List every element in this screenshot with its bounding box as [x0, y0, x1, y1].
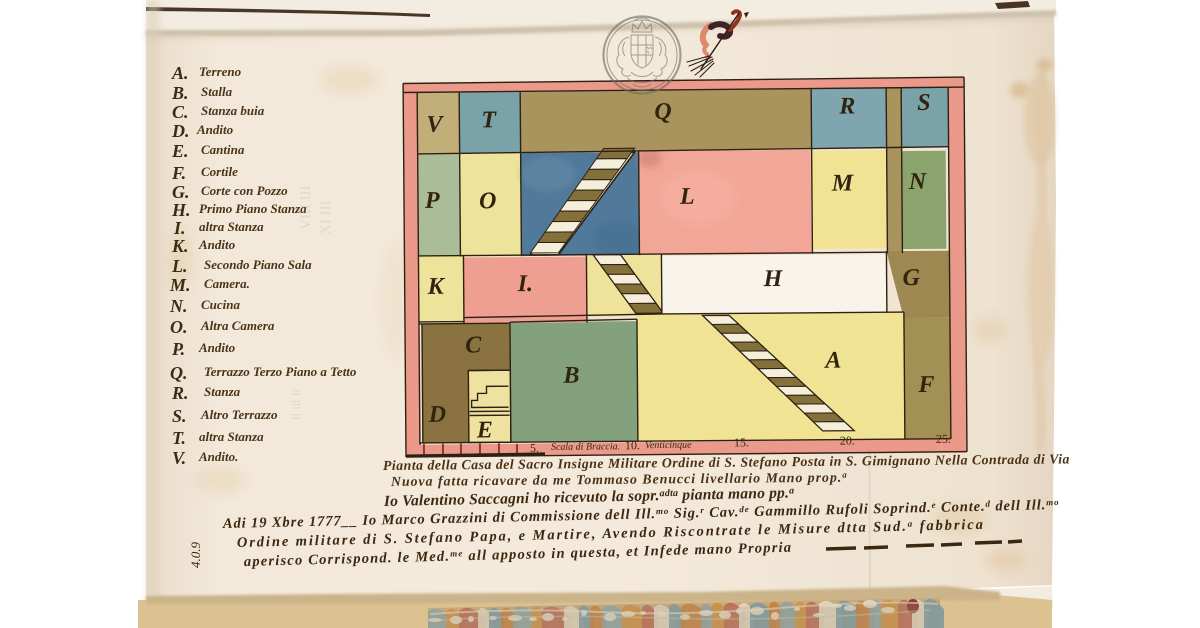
svg-text:O.: O. — [170, 317, 188, 337]
svg-text:Camera.: Camera. — [204, 276, 250, 291]
svg-text:altra Stanza: altra Stanza — [199, 219, 264, 234]
svg-text:Altra Camera: Altra Camera — [200, 318, 275, 333]
svg-text:P: P — [424, 188, 440, 214]
svg-text:S: S — [917, 90, 931, 116]
svg-text:Cucina: Cucina — [201, 297, 241, 312]
svg-text:altra Stanza: altra Stanza — [199, 429, 264, 444]
svg-text:Andito: Andito — [198, 237, 236, 252]
svg-text:Terreno: Terreno — [199, 64, 242, 79]
svg-text:B.: B. — [171, 83, 189, 103]
svg-text:M.: M. — [169, 275, 191, 295]
svg-text:F.: F. — [171, 163, 186, 183]
svg-text:Terrazzo Terzo Piano a Tetto: Terrazzo Terzo Piano a Tetto — [204, 364, 357, 379]
svg-text:Altro Terrazzo: Altro Terrazzo — [200, 407, 278, 422]
svg-text:T.: T. — [172, 428, 186, 448]
svg-text:Primo Piano Stanza: Primo Piano Stanza — [199, 201, 307, 216]
svg-text:R: R — [838, 93, 855, 119]
svg-text:M: M — [831, 170, 855, 196]
svg-text:Corte con Pozzo: Corte con Pozzo — [201, 183, 288, 198]
svg-text:Cantina: Cantina — [201, 142, 245, 157]
svg-text:Secondo Piano Sala: Secondo Piano Sala — [204, 257, 312, 272]
svg-text:I.: I. — [517, 271, 534, 297]
svg-text:S.: S. — [172, 406, 187, 426]
svg-text:20.: 20. — [840, 433, 855, 447]
svg-text:P.: P. — [171, 339, 185, 359]
svg-text:15.: 15. — [734, 435, 749, 449]
svg-text:ll ul li: ll ul li — [288, 389, 303, 420]
svg-text:I.: I. — [173, 218, 186, 238]
svg-text:H: H — [763, 266, 784, 292]
svg-text:Q: Q — [654, 99, 672, 125]
svg-text:25.: 25. — [936, 432, 951, 446]
svg-text:10.: 10. — [625, 438, 640, 452]
svg-text:D.: D. — [171, 121, 190, 141]
svg-text:Stanza buia: Stanza buia — [201, 103, 265, 118]
svg-text:D: D — [428, 402, 447, 428]
svg-text:G: G — [903, 265, 921, 291]
svg-text:N: N — [908, 169, 928, 195]
svg-text:O: O — [479, 188, 497, 214]
svg-text:VIII III: VIII III — [298, 185, 314, 230]
svg-text:5.: 5. — [530, 441, 539, 455]
svg-text:T: T — [481, 107, 497, 133]
svg-text:B: B — [562, 363, 579, 389]
svg-text:Venticinque: Venticinque — [645, 440, 692, 451]
svg-text:V: V — [426, 112, 444, 138]
svg-text:Q.: Q. — [170, 363, 188, 383]
svg-text:Stalla: Stalla — [201, 84, 233, 99]
svg-text:L.: L. — [171, 256, 188, 276]
svg-text:C.: C. — [172, 102, 189, 122]
svg-text:Scala di Braccia.: Scala di Braccia. — [551, 441, 620, 453]
svg-text:Stanza: Stanza — [204, 384, 241, 399]
svg-text:4.0.9: 4.0.9 — [188, 542, 203, 569]
svg-text:F: F — [917, 372, 934, 398]
svg-text:H.: H. — [171, 200, 191, 220]
svg-text:K.: K. — [171, 236, 189, 256]
svg-text:E.: E. — [171, 141, 189, 161]
svg-text:A.: A. — [171, 63, 189, 83]
svg-text:N.: N. — [169, 296, 188, 316]
svg-text:C: C — [465, 332, 482, 358]
svg-text:E: E — [476, 417, 493, 443]
svg-text:Andito: Andito — [198, 340, 236, 355]
svg-text:Andito: Andito — [196, 122, 234, 137]
svg-text:K: K — [427, 274, 446, 300]
svg-text:G.: G. — [172, 182, 190, 202]
svg-text:V.: V. — [172, 448, 186, 468]
svg-text:A: A — [823, 348, 841, 374]
svg-text:Cortile: Cortile — [201, 164, 238, 179]
svg-text:L: L — [679, 184, 695, 210]
svg-text:R.: R. — [171, 383, 189, 403]
svg-text:Andito.: Andito. — [198, 449, 238, 464]
svg-text:XI III: XI III — [318, 200, 334, 235]
